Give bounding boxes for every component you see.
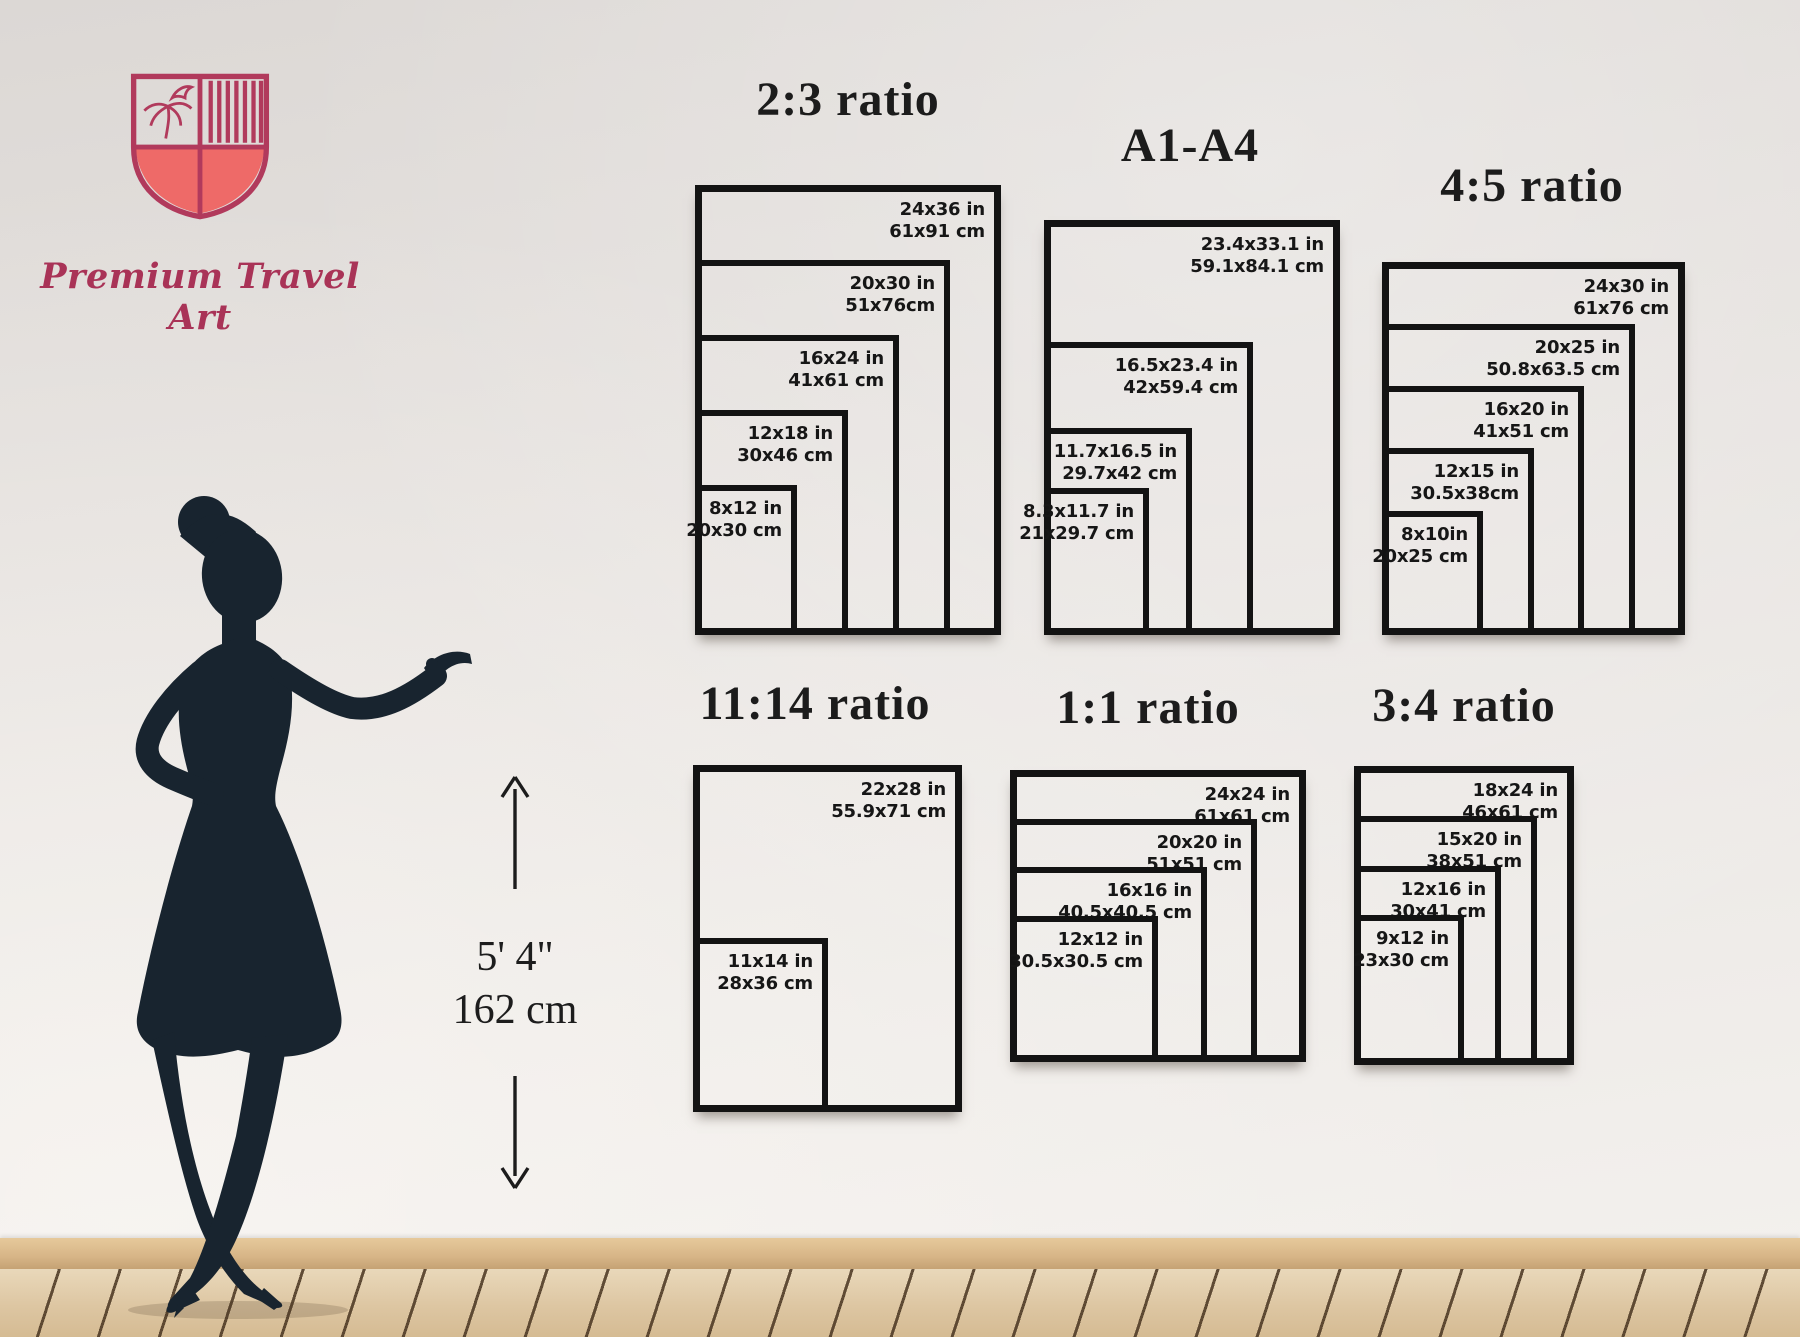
- size-inches: 24x24 in: [1194, 784, 1290, 806]
- size-centimeters: 30.5x38cm: [1410, 483, 1519, 505]
- size-label: 23.4x33.1 in59.1x84.1 cm: [1190, 234, 1324, 278]
- size-label: 22x28 in55.9x71 cm: [831, 779, 946, 823]
- size-label: 8x12 in20x30 cm: [686, 498, 782, 542]
- group-box-ratio-11-14: 22x28 in55.9x71 cm11x14 in28x36 cm: [693, 765, 962, 1112]
- size-centimeters: 51x76cm: [845, 295, 935, 317]
- size-inches: 11x14 in: [717, 951, 813, 973]
- height-marker: 5' 4" 162 cm: [430, 775, 600, 1190]
- size-inches: 23.4x33.1 in: [1190, 234, 1324, 256]
- size-label: 20x30 in51x76cm: [845, 273, 935, 317]
- group-title-ratio-1-1: 1:1 ratio: [1056, 680, 1240, 735]
- brand-logo: Premium Travel Art: [40, 70, 360, 338]
- group-title-ratio-11-14: 11:14 ratio: [700, 676, 931, 731]
- group-box-a1-a4: 23.4x33.1 in59.1x84.1 cm16.5x23.4 in42x5…: [1044, 220, 1340, 635]
- size-inches: 24x30 in: [1573, 276, 1669, 298]
- size-label: 9x12 in23x30 cm: [1353, 928, 1449, 972]
- print-size-rect-ratio-4-5-8x10in: 8x10in20x25 cm: [1382, 511, 1483, 635]
- size-inches: 24x36 in: [889, 199, 985, 221]
- size-label: 11.7x16.5 in29.7x42 cm: [1054, 441, 1177, 485]
- size-label: 16x24 in41x61 cm: [788, 348, 884, 392]
- size-centimeters: 59.1x84.1 cm: [1190, 256, 1324, 278]
- stripes-quadrant: [211, 81, 261, 143]
- size-inches: 9x12 in: [1353, 928, 1449, 950]
- print-size-rect-ratio-3-4-9x12in: 9x12 in23x30 cm: [1354, 915, 1464, 1065]
- size-centimeters: 23x30 cm: [1353, 950, 1449, 972]
- size-centimeters: 20x25 cm: [1372, 546, 1468, 568]
- size-inches: 16x24 in: [788, 348, 884, 370]
- woman-silhouette: [88, 492, 472, 1320]
- size-centimeters: 30x46 cm: [737, 445, 833, 467]
- height-feet-label: 5' 4": [430, 931, 600, 984]
- size-inches: 16x20 in: [1473, 399, 1569, 421]
- group-box-ratio-2-3: 24x36 in61x91 cm20x30 in51x76cm16x24 in4…: [695, 185, 1001, 635]
- size-inches: 20x25 in: [1486, 337, 1620, 359]
- size-label: 12x18 in30x46 cm: [737, 423, 833, 467]
- size-label: 16.5x23.4 in42x59.4 cm: [1115, 355, 1238, 399]
- open-palm-hand: [424, 652, 472, 684]
- size-inches: 12x15 in: [1410, 461, 1519, 483]
- size-label: 12x15 in30.5x38cm: [1410, 461, 1519, 505]
- size-centimeters: 61x76 cm: [1573, 298, 1669, 320]
- size-centimeters: 29.7x42 cm: [1054, 463, 1177, 485]
- size-centimeters: 21x29.7 cm: [1019, 523, 1134, 545]
- size-label: 16x20 in41x51 cm: [1473, 399, 1569, 443]
- size-inches: 16x16 in: [1058, 880, 1192, 902]
- brand-name: Premium Travel Art: [40, 256, 360, 338]
- size-inches: 8x10in: [1372, 524, 1468, 546]
- print-size-rect-ratio-11-14-11x14in: 11x14 in28x36 cm: [693, 938, 828, 1112]
- size-label: 20x25 in50.8x63.5 cm: [1486, 337, 1620, 381]
- size-inches: 16.5x23.4 in: [1115, 355, 1238, 377]
- size-inches: 8.3x11.7 in: [1019, 501, 1134, 523]
- size-centimeters: 28x36 cm: [717, 973, 813, 995]
- group-box-ratio-3-4: 18x24 in46x61 cm15x20 in38x51 cm12x16 in…: [1354, 766, 1574, 1065]
- size-inches: 12x12 in: [1009, 929, 1143, 951]
- print-size-rect-ratio-2-3-8x12in: 8x12 in20x30 cm: [695, 485, 797, 635]
- print-size-rect-a1-a4-8.3x11.7in: 8.3x11.7 in21x29.7 cm: [1044, 488, 1149, 635]
- group-box-ratio-4-5: 24x30 in61x76 cm20x25 in50.8x63.5 cm16x2…: [1382, 262, 1685, 635]
- size-label: 8x10in20x25 cm: [1372, 524, 1468, 568]
- size-inches: 20x20 in: [1146, 832, 1242, 854]
- shield-logo-icon: [125, 70, 275, 222]
- size-inches: 11.7x16.5 in: [1054, 441, 1177, 463]
- size-label: 24x30 in61x76 cm: [1573, 276, 1669, 320]
- size-guide-poster: Premium Travel Art: [0, 0, 1800, 1337]
- size-label: 12x12 in30.5x30.5 cm: [1009, 929, 1143, 973]
- size-centimeters: 55.9x71 cm: [831, 801, 946, 823]
- figure-shadow: [128, 1301, 348, 1319]
- size-label: 11x14 in28x36 cm: [717, 951, 813, 995]
- group-box-ratio-1-1: 24x24 in61x61 cm20x20 in51x51 cm16x16 in…: [1010, 770, 1306, 1062]
- group-title-ratio-3-4: 3:4 ratio: [1372, 678, 1556, 733]
- size-centimeters: 61x91 cm: [889, 221, 985, 243]
- size-centimeters: 41x51 cm: [1473, 421, 1569, 443]
- size-centimeters: 30.5x30.5 cm: [1009, 951, 1143, 973]
- size-inches: 12x18 in: [737, 423, 833, 445]
- size-inches: 15x20 in: [1426, 829, 1522, 851]
- size-centimeters: 50.8x63.5 cm: [1486, 359, 1620, 381]
- group-title-a1-a4: A1-A4: [1121, 118, 1259, 173]
- size-centimeters: 42x59.4 cm: [1115, 377, 1238, 399]
- group-title-ratio-4-5: 4:5 ratio: [1440, 158, 1624, 213]
- size-inches: 22x28 in: [831, 779, 946, 801]
- size-inches: 8x12 in: [686, 498, 782, 520]
- size-centimeters: 20x30 cm: [686, 520, 782, 542]
- size-inches: 20x30 in: [845, 273, 935, 295]
- print-size-rect-ratio-1-1-12x12in: 12x12 in30.5x30.5 cm: [1010, 916, 1158, 1062]
- arrow-down-icon: [495, 1074, 535, 1190]
- size-inches: 18x24 in: [1462, 780, 1558, 802]
- group-title-ratio-2-3: 2:3 ratio: [756, 72, 940, 127]
- size-label: 8.3x11.7 in21x29.7 cm: [1019, 501, 1134, 545]
- size-label: 24x36 in61x91 cm: [889, 199, 985, 243]
- height-cm-label: 162 cm: [430, 984, 600, 1037]
- arrow-up-icon: [495, 775, 535, 891]
- size-inches: 12x16 in: [1390, 879, 1486, 901]
- palm-bird-icon: [144, 87, 191, 139]
- size-centimeters: 41x61 cm: [788, 370, 884, 392]
